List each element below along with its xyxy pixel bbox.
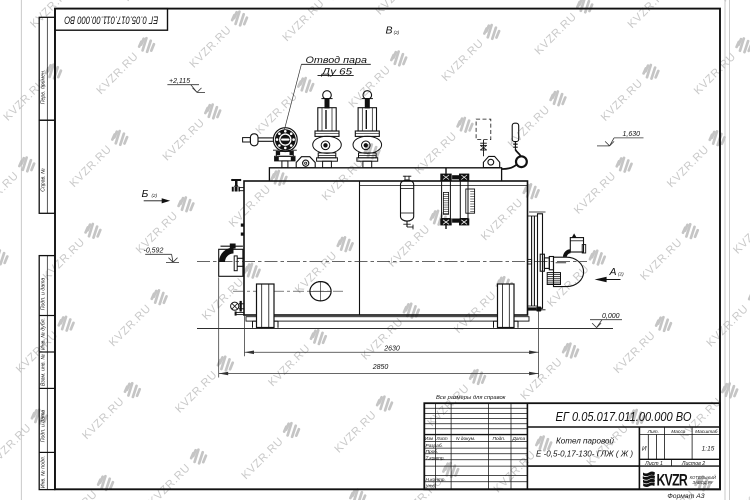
svg-text:Утб.: Утб. bbox=[426, 483, 437, 489]
svg-text:N докум.: N докум. bbox=[456, 436, 475, 442]
svg-text:Лист: Лист bbox=[436, 436, 448, 441]
svg-text:И: И bbox=[642, 446, 647, 453]
svg-text:Формат А3: Формат А3 bbox=[667, 493, 704, 500]
svg-text:Масса: Масса bbox=[671, 429, 686, 435]
svg-text:(2): (2) bbox=[618, 272, 624, 277]
svg-text:-0,592: -0,592 bbox=[144, 248, 164, 255]
svg-text:Проб.: Проб. bbox=[426, 449, 439, 455]
svg-text:Масштаб: Масштаб bbox=[695, 429, 718, 435]
svg-text:Котел паровой: Котел паровой bbox=[556, 437, 615, 446]
svg-text:ЕГ 0.05.017.011.00.000 ВО: ЕГ 0.05.017.011.00.000 ВО bbox=[64, 13, 158, 25]
svg-text:А: А bbox=[609, 266, 617, 278]
svg-text:Разраб.: Разраб. bbox=[426, 443, 443, 449]
svg-text:Подп.: Подп. bbox=[493, 436, 506, 442]
svg-text:1,630: 1,630 bbox=[623, 131, 641, 138]
svg-text:ЕГ 0.05.017.011.00.000 ВО: ЕГ 0.05.017.011.00.000 ВО bbox=[556, 410, 692, 424]
svg-text:Н.контр.: Н.контр. bbox=[426, 477, 446, 483]
svg-text:Взам. инв. №: Взам. инв. № bbox=[40, 354, 46, 386]
svg-text:Инв. № дубл.: Инв. № дубл. bbox=[40, 318, 46, 350]
svg-text:Подп. и дата: Подп. и дата bbox=[40, 410, 46, 443]
svg-text:Лист 1: Лист 1 bbox=[644, 461, 663, 467]
svg-text:Ду 65: Ду 65 bbox=[321, 66, 353, 76]
svg-text:Дата: Дата bbox=[512, 436, 526, 442]
svg-text:0,000: 0,000 bbox=[602, 313, 620, 320]
svg-text:(2): (2) bbox=[394, 30, 400, 35]
svg-text:Изм: Изм bbox=[425, 436, 433, 441]
svg-text:2850: 2850 bbox=[372, 364, 389, 371]
svg-text:+2,115: +2,115 bbox=[169, 78, 190, 85]
svg-text:Лит.: Лит. bbox=[647, 429, 659, 435]
svg-text:Перв. примен.: Перв. примен. bbox=[40, 70, 46, 104]
svg-text:Б: Б bbox=[142, 188, 149, 200]
svg-text:1:15: 1:15 bbox=[702, 446, 715, 453]
svg-text:ЗАВОД.РУ: ЗАВОД.РУ bbox=[693, 480, 715, 485]
svg-text:Отвод пара: Отвод пара bbox=[306, 55, 368, 65]
svg-text:Листов 2: Листов 2 bbox=[681, 461, 705, 467]
svg-text:В: В bbox=[386, 24, 393, 36]
svg-text:Е -0,5-0,17-130- ГЛЖ ( Ж ): Е -0,5-0,17-130- ГЛЖ ( Ж ) bbox=[536, 449, 633, 458]
svg-text:Подп. и дата: Подп. и дата bbox=[40, 278, 46, 311]
svg-text:Все размеры для справок: Все размеры для справок bbox=[436, 395, 506, 401]
svg-text:(2): (2) bbox=[152, 193, 158, 198]
svg-text:Справ. №: Справ. № bbox=[40, 168, 46, 192]
svg-text:2630: 2630 bbox=[383, 346, 400, 353]
svg-text:Инв. № подл.: Инв. № подл. bbox=[40, 456, 46, 488]
svg-text:Т.контр.: Т.контр. bbox=[426, 455, 445, 461]
svg-text:KVZR: KVZR bbox=[657, 471, 688, 490]
